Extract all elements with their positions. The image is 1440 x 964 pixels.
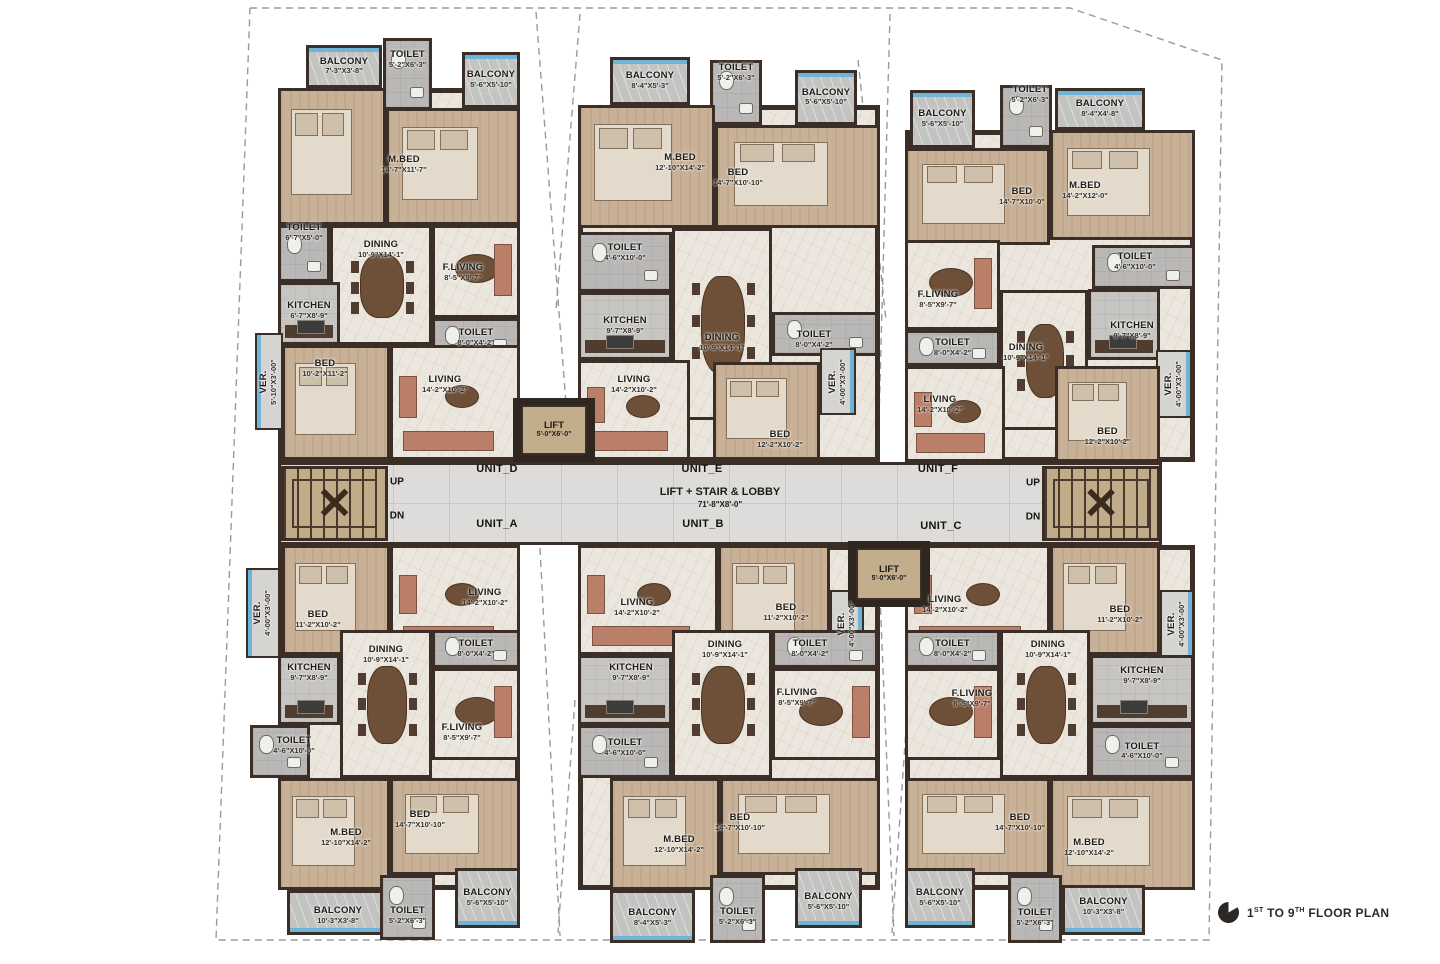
furniture-living [587, 575, 605, 614]
room-dims: 5'-2"X6'-3" [717, 74, 754, 83]
room-label-unit_f-toilet: TOILET4'-6"X10'-0" [1114, 252, 1156, 272]
furniture-dining [360, 254, 405, 318]
furniture-dining [409, 698, 417, 710]
stair-cross: ✕ [316, 478, 353, 529]
lift-dims: 5'-0"X6'-0" [537, 432, 572, 440]
furniture-bed [443, 796, 470, 813]
room-label-unit_b-ver: VER.4'-00"X3'-00" [837, 601, 857, 647]
room-label-unit_b-dining: DINING10'-9"X14'-1" [702, 640, 748, 660]
room-dims: 8'-5"X9'-7" [443, 274, 484, 283]
furniture-kitchen [297, 320, 325, 334]
furniture-bed [1072, 384, 1094, 400]
furniture-dining [351, 302, 359, 314]
room-dims: 5'-6"X5'-10" [467, 81, 515, 90]
room-dims: 5'-6"X5'-10" [802, 99, 850, 108]
room-label-unit_c-kitchen: KITCHEN9'-7"X8'-9" [1120, 666, 1164, 686]
window-marker [798, 73, 854, 77]
furniture-dining [1068, 724, 1076, 736]
room-dims: 9'-7"X8'-9" [609, 674, 653, 683]
room-label-unit_f-living: LIVING14'-2"X10'-2" [917, 395, 963, 415]
room-label-unit_a-balcony: BALCONY5'-6"X5'-10" [463, 888, 511, 908]
room-label-unit_d-mbed: M.BED14'-7"X11'-7" [381, 155, 426, 175]
room-dims: 5'-6"X5'-10" [918, 120, 966, 129]
staircase-right: ✕ [1042, 466, 1160, 541]
furniture-dining [692, 283, 700, 295]
room-dims: 6'-7"X5'-0" [285, 234, 322, 243]
window-marker [913, 93, 972, 97]
room-dims: 10'-2"X11'-2" [302, 370, 347, 379]
room-dims: 4'-00"X3'-00" [1178, 601, 1187, 647]
room-dims: 14'-2"X10'-2" [917, 406, 963, 415]
room-dims: 8'-0"X4'-2" [791, 650, 828, 659]
furniture-dining [747, 283, 755, 295]
room-dims: 8'-0"X4'-2" [934, 650, 971, 659]
room-label-unit_c-ver: VER.4'-00"X3'-00" [1167, 601, 1187, 647]
room-label-unit_b-toilet: TOILET5'-2"X6'-3" [719, 907, 756, 927]
furniture-toilet [644, 757, 658, 768]
room-unit_f-fliving [905, 240, 1000, 330]
room-dims: 10'-9"X14'-1" [699, 344, 745, 353]
room-dims: 4'-6"X10'-0" [604, 749, 646, 758]
furniture-bed [745, 796, 778, 813]
plan-title: 1ST TO 9TH FLOOR PLAN [1247, 906, 1389, 920]
lift-name: LIFT [872, 564, 907, 575]
furniture-dining [406, 261, 414, 273]
room-dims: 10'-3"X3'-8" [1079, 908, 1127, 917]
stair-up-label: UP [1026, 478, 1040, 489]
furniture-dining [1017, 673, 1025, 685]
room-dims: 8'-5"X9'-7" [777, 699, 818, 708]
room-label-unit_c-toilet: TOILET4'-6"X10'-0" [1121, 742, 1163, 762]
room-label-unit_a-toilet: TOILET8'-0"X4'-2" [457, 639, 494, 659]
room-dims: 14'-2"X10'-2" [922, 606, 968, 615]
furniture-dining [358, 698, 366, 710]
lift-label: LIFT5'-0"X6'-0" [872, 564, 907, 584]
window-marker [798, 921, 859, 925]
room-label-unit_d-ver: VER.5'-10"X3'-00" [259, 359, 279, 405]
room-dims: 12'-10"X14'-2" [654, 846, 704, 855]
furniture-toilet [259, 735, 274, 754]
room-label-unit_b-fliving: F.LIVING8'-5"X9'-7" [777, 688, 818, 708]
furniture-living [626, 395, 660, 418]
room-dims: 5'-2"X6'-3" [1011, 96, 1048, 105]
room-dims: 4'-6"X10'-0" [604, 254, 646, 263]
room-unit_d-living [390, 345, 520, 460]
furniture-kitchen [297, 700, 325, 714]
room-label-unit_e-toilet: TOILET5'-2"X6'-3" [717, 63, 754, 83]
furniture-living [399, 376, 417, 417]
room-dims: 14'-7"X10'-0" [999, 198, 1045, 207]
room-label-unit_a-bed: BED14'-7"X10'-10" [395, 810, 445, 830]
lift-dims: 5'-0"X6'-0" [872, 576, 907, 584]
room-label-unit_f-toilet: TOILET8'-0"X4'-2" [934, 338, 971, 358]
furniture-toilet [287, 757, 301, 768]
room-label-unit_c-bed: BED11'-2"X10'-2" [1097, 605, 1142, 625]
furniture-dining [1066, 331, 1074, 343]
room-dims: 11'-2"X10'-2" [763, 614, 808, 623]
furniture-kitchen [1120, 700, 1148, 714]
room-dims: 8'-5"X9'-7" [918, 301, 959, 310]
room-label-unit_e-kitchen: KITCHEN9'-7"X8'-9" [603, 316, 647, 336]
furniture-living [589, 431, 667, 451]
room-label-unit_e-bed: BED14'-7"X10'-10" [713, 168, 763, 188]
room-dims: 10'-9"X14'-1" [358, 251, 404, 260]
furniture-bed [964, 796, 994, 813]
room-label-unit_a-toilet: TOILET5'-2"X6'-3" [389, 906, 426, 926]
furniture-toilet [1017, 887, 1032, 906]
room-dims: 5'-2"X6'-3" [719, 918, 756, 927]
room-dims: 14'-2"X10'-2" [422, 386, 468, 395]
furniture-bed [927, 796, 957, 813]
furniture-dining [409, 724, 417, 736]
furniture-bed [296, 799, 319, 818]
furniture-bed [927, 166, 957, 183]
furniture-toilet [849, 650, 863, 661]
room-dims: 7'-3"X3'-8" [320, 68, 368, 77]
furniture-bed [1109, 799, 1139, 818]
window-marker [1188, 592, 1192, 655]
furniture-toilet [972, 348, 986, 359]
room-label-unit_e-balcony: BALCONY8'-4"X5'-3" [626, 71, 674, 91]
room-label-unit_f-bed: BED12'-2"X10'-2" [1085, 427, 1131, 447]
stair-cross: ✕ [1083, 478, 1120, 529]
furniture-bed [730, 381, 752, 398]
furniture-dining [747, 724, 755, 736]
furniture-dining [701, 276, 745, 374]
room-label-unit_e-toilet: TOILET4'-6"X10'-0" [604, 243, 646, 263]
furniture-toilet [1166, 270, 1180, 281]
furniture-dining [1017, 379, 1025, 391]
room-label-unit_e-mbed: M.BED12'-10"X14'-2" [655, 153, 705, 173]
room-label-unit_e-toilet: TOILET8'-0"X4'-2" [795, 330, 832, 350]
furniture-bed [326, 566, 348, 585]
window-marker [309, 48, 379, 52]
room-dims: 14'-2"X10'-2" [611, 386, 657, 395]
furniture-dining [1026, 666, 1066, 745]
room-label-unit_f-balcony: BALCONY8'-4"X4'-8" [1076, 99, 1124, 119]
furniture-dining [692, 698, 700, 710]
room-label-unit_e-bed: BED12'-2"X10'-2" [757, 430, 803, 450]
room-dims: 14'-2"X10'-2" [614, 609, 660, 618]
furniture-toilet [919, 637, 934, 656]
room-label-unit_f-dining: DINING10'-9"X14'-1" [1003, 343, 1049, 363]
unit-label-unit_a: UNIT_A [476, 518, 518, 530]
lobby-title: LIFT + STAIR & LOBBY [660, 486, 781, 500]
room-label-unit_e-balcony: BALCONY5'-6"X5'-10" [802, 88, 850, 108]
room-label-unit_c-bed: BED14'-7"X10'-10" [995, 813, 1045, 833]
furniture-living [403, 431, 494, 451]
room-label-unit_d-toilet: TOILET8'-0"X4'-2" [457, 328, 494, 348]
room-unit_f-bed [1055, 366, 1160, 462]
furniture-fliving [974, 258, 992, 309]
room-label-unit_b-bed: BED14'-7"X10'-10" [715, 813, 765, 833]
room-unit_c-mbed [1050, 778, 1195, 890]
furniture-bed [1072, 151, 1102, 170]
furniture-dining [747, 673, 755, 685]
furniture-bed [440, 130, 468, 150]
room-label-unit_b-balcony: BALCONY8'-4"X5'-3" [628, 908, 676, 928]
room-label-unit_d-toilet: TOILET6'-7"X5'-0" [285, 223, 322, 243]
room-label-unit_a-bed: BED11'-2"X10'-2" [295, 610, 340, 630]
window-marker [908, 921, 972, 925]
furniture-bed [323, 799, 346, 818]
furniture-bed [964, 166, 994, 183]
furniture-dining [1017, 331, 1025, 343]
room-label-unit_a-toilet: TOILET4'-6"X10'-0" [273, 736, 315, 756]
room-label-unit_a-fliving: F.LIVING8'-5"X9'-7" [442, 723, 483, 743]
room-label-unit_f-fliving: F.LIVING8'-5"X9'-7" [918, 290, 959, 310]
furniture-bed [763, 566, 786, 585]
room-dims: 8'-4"X5'-3" [626, 82, 674, 91]
room-dims: 12'-10"X14'-2" [321, 839, 371, 848]
room-label-unit_f-bed: BED14'-7"X10'-0" [999, 187, 1045, 207]
room-dims: 5'-2"X6'-3" [1016, 919, 1053, 928]
room-dims: 8'-4"X5'-3" [628, 919, 676, 928]
lobby-dims: 71'-8"X8'-0" [660, 500, 781, 510]
furniture-bed [1098, 384, 1120, 400]
plan-footer: 1ST TO 9TH FLOOR PLAN [1218, 902, 1389, 923]
room-label-unit_d-toilet: TOILET5'-2"X6'-3" [389, 50, 426, 70]
furniture-toilet [410, 87, 424, 98]
staircase-left: ✕ [281, 466, 388, 541]
room-dims: 4'-00"X3'-00" [264, 590, 273, 636]
furniture-dining [406, 282, 414, 294]
furniture-bed [322, 113, 344, 136]
room-label-unit_e-living: LIVING14'-2"X10'-2" [611, 375, 657, 395]
furniture-living [399, 575, 417, 614]
room-unit_b-fliving [772, 668, 878, 760]
unit-label-unit_f: UNIT_F [918, 463, 958, 475]
room-label-unit_f-balcony: BALCONY5'-6"X5'-10" [918, 109, 966, 129]
room-label-unit_c-balcony: BALCONY5'-6"X5'-10" [916, 888, 964, 908]
room-dims: 12'-10"X14'-2" [1064, 849, 1114, 858]
lobby-label: LIFT + STAIR & LOBBY 71'-8"X8'-0" [660, 486, 781, 510]
room-dims: 5'-2"X6'-3" [389, 61, 426, 70]
furniture-dining [692, 673, 700, 685]
furniture-dining [351, 261, 359, 273]
furniture-dining [701, 666, 745, 745]
unit-label-unit_d: UNIT_D [476, 463, 518, 475]
room-label-unit_b-living: LIVING14'-2"X10'-2" [614, 598, 660, 618]
furniture-dining [351, 282, 359, 294]
window-marker [1065, 928, 1142, 932]
furniture-dining [747, 347, 755, 359]
window-marker [850, 350, 854, 413]
furniture-dining [1068, 673, 1076, 685]
room-dims: 11'-2"X10'-2" [295, 621, 340, 630]
room-label-unit_c-mbed: M.BED12'-10"X14'-2" [1064, 838, 1114, 858]
room-dims: 4'-00"X3'-00" [848, 601, 857, 647]
furniture-bed [299, 566, 321, 585]
furniture-bed [756, 381, 778, 398]
room-unit_a-fliving [432, 668, 520, 760]
furniture-bed [628, 799, 651, 818]
window-marker [1186, 352, 1190, 416]
room-dims: 4'-6"X10'-0" [1114, 263, 1156, 272]
furniture-toilet [389, 886, 404, 905]
furniture-bed [1109, 151, 1139, 170]
room-dims: 14'-7"X10'-10" [715, 824, 765, 833]
room-dims: 14'-2"X12'-0" [1062, 192, 1108, 201]
lift-label: LIFT5'-0"X6'-0" [537, 420, 572, 440]
north-marker-icon [1218, 902, 1239, 923]
furniture-kitchen [606, 700, 634, 714]
room-label-unit_d-balcony: BALCONY5'-6"X5'-10" [467, 70, 515, 90]
furniture-toilet [1105, 735, 1120, 754]
room-label-unit_a-ver: VER.4'-00"X3'-00" [253, 590, 273, 636]
stair-down-label: DN [390, 511, 404, 522]
furniture-bed [633, 128, 661, 149]
room-label-unit_c-dining: DINING10'-9"X14'-1" [1025, 640, 1071, 660]
room-unit_c-fliving [905, 668, 1000, 760]
furniture-bed [785, 796, 818, 813]
room-unit_d-bedroom [278, 88, 386, 225]
furniture-toilet [739, 103, 753, 114]
unit-label-unit_c: UNIT_C [920, 520, 962, 532]
room-dims: 4'-00"X3'-00" [839, 359, 848, 405]
room-dims: 14'-2"X10'-2" [462, 599, 508, 608]
room-label-unit_d-kitchen: KITCHEN6'-7"X8'-9" [287, 301, 331, 321]
lift-lower: LIFT5'-0"X6'-0" [848, 541, 930, 607]
room-label-unit_a-kitchen: KITCHEN9'-7"X8'-9" [287, 663, 331, 683]
room-dims: 5'-6"X5'-10" [804, 903, 852, 912]
room-label-unit_c-toilet: TOILET8'-0"X4'-2" [934, 639, 971, 659]
floor-plan-canvas: LIFT + STAIR & LOBBY 71'-8"X8'-0" 1ST TO… [0, 0, 1440, 964]
room-label-unit_c-toilet: TOILET5'-2"X6'-3" [1016, 908, 1053, 928]
room-label-unit_b-kitchen: KITCHEN9'-7"X8'-9" [609, 663, 653, 683]
room-dims: 12'-2"X10'-2" [757, 441, 803, 450]
room-dims: 8'-4"X4'-8" [1076, 110, 1124, 119]
furniture-toilet [493, 650, 507, 661]
room-dims: 8'-0"X4'-2" [457, 650, 494, 659]
room-label-unit_b-toilet: TOILET8'-0"X4'-2" [791, 639, 828, 659]
room-label-unit_a-mbed: M.BED12'-10"X14'-2" [321, 828, 371, 848]
furniture-toilet [719, 887, 734, 906]
window-marker [613, 936, 692, 940]
room-dims: 10'-9"X14'-1" [363, 656, 409, 665]
room-dims: 9'-7"X8'-9" [287, 674, 331, 683]
stair-down-label: DN [1026, 512, 1040, 523]
furniture-toilet [972, 650, 986, 661]
furniture-fliving [494, 244, 512, 296]
window-marker [1058, 91, 1142, 95]
furniture-bed [407, 130, 435, 150]
furniture-living [916, 433, 986, 453]
room-dims: 4'-00"X3'-00" [1175, 361, 1184, 407]
room-label-unit_b-balcony: BALCONY5'-6"X5'-10" [804, 892, 852, 912]
room-label-unit_a-living: LIVING14'-2"X10'-2" [462, 588, 508, 608]
room-label-unit_a-balcony: BALCONY10'-3"X3'-8" [314, 906, 362, 926]
furniture-toilet [1029, 126, 1043, 137]
room-dims: 12'-2"X10'-2" [1085, 438, 1131, 447]
room-dims: 8'-0"X4'-2" [795, 341, 832, 350]
room-dims: 9'-7"X8'-9" [1120, 677, 1164, 686]
room-label-unit_b-mbed: M.BED12'-10"X14'-2" [654, 835, 704, 855]
room-dims: 14'-7"X10'-10" [995, 824, 1045, 833]
furniture-bed [1072, 799, 1102, 818]
furniture-fliving [852, 686, 870, 738]
furniture-toilet [849, 337, 863, 348]
room-label-unit_e-ver: VER.4'-00"X3'-00" [828, 359, 848, 405]
room-label-unit_d-bed: BED10'-2"X11'-2" [302, 359, 347, 379]
room-label-unit_c-balcony: BALCONY10'-3"X3'-8" [1079, 897, 1127, 917]
furniture-kitchen [606, 335, 634, 349]
room-dims: 5'-10"X3'-00" [270, 359, 279, 405]
room-label-unit_c-living: LIVING14'-2"X10'-2" [922, 595, 968, 615]
furniture-bed [655, 799, 678, 818]
furniture-toilet [919, 337, 934, 356]
furniture-dining [747, 698, 755, 710]
room-dims: 14'-7"X11'-7" [381, 166, 426, 175]
furniture-dining [747, 315, 755, 327]
room-dims: 4'-6"X10'-0" [273, 747, 315, 756]
room-dims: 8'-5"X9'-7" [952, 700, 993, 709]
stair-up-label: UP [390, 477, 404, 488]
furniture-toilet [644, 270, 658, 281]
furniture-bed [740, 144, 774, 162]
furniture-dining [692, 724, 700, 736]
furniture-dining [1017, 698, 1025, 710]
room-label-unit_f-toilet: TOILET5'-2"X6'-3" [1011, 85, 1048, 105]
furniture-dining [367, 666, 408, 745]
lift-upper: LIFT5'-0"X6'-0" [513, 398, 595, 462]
room-label-unit_b-toilet: TOILET4'-6"X10'-0" [604, 738, 646, 758]
room-label-unit_a-dining: DINING10'-9"X14'-1" [363, 645, 409, 665]
room-dims: 10'-3"X3'-8" [314, 917, 362, 926]
room-dims: 4'-6"X10'-0" [1121, 753, 1163, 762]
room-label-unit_d-living: LIVING14'-2"X10'-2" [422, 375, 468, 395]
room-label-unit_e-dining: DINING10'-9"X14'-1" [699, 333, 745, 353]
room-label-unit_f-kitchen: KITCHEN9'-7"X8'-9" [1110, 321, 1154, 341]
room-dims: 8'-5"X9'-7" [442, 734, 483, 743]
furniture-bed [736, 566, 759, 585]
unit-label-unit_b: UNIT_B [682, 518, 724, 530]
room-dims: 9'-7"X8'-9" [1110, 332, 1154, 341]
room-label-unit_b-bed: BED11'-2"X10'-2" [763, 603, 808, 623]
furniture-bed [1095, 566, 1118, 585]
furniture-dining [692, 315, 700, 327]
room-dims: 14'-7"X10'-10" [713, 179, 763, 188]
window-marker [613, 60, 687, 64]
window-marker [458, 921, 517, 925]
room-label-unit_f-mbed: M.BED14'-2"X12'-0" [1062, 181, 1108, 201]
lift-name: LIFT [537, 420, 572, 431]
room-dims: 6'-7"X8'-9" [287, 312, 331, 321]
furniture-bed [599, 128, 627, 149]
room-label-unit_d-balcony: BALCONY7'-3"X3'-8" [320, 57, 368, 77]
room-dims: 10'-9"X14'-1" [702, 651, 748, 660]
furniture-living [966, 583, 1000, 606]
room-dims: 14'-7"X10'-10" [395, 821, 445, 830]
furniture-dining [409, 673, 417, 685]
room-dims: 5'-6"X5'-10" [463, 899, 511, 908]
furniture-bed [295, 113, 317, 136]
furniture-toilet [1165, 757, 1179, 768]
room-dims: 10'-9"X14'-1" [1025, 651, 1071, 660]
room-dims: 5'-2"X6'-3" [389, 917, 426, 926]
room-dims: 9'-7"X8'-9" [603, 327, 647, 336]
room-label-unit_c-fliving: F.LIVING8'-5"X9'-7" [952, 689, 993, 709]
furniture-bed [782, 144, 816, 162]
furniture-toilet [307, 261, 321, 272]
room-dims: 8'-0"X4'-2" [457, 339, 494, 348]
room-dims: 5'-6"X5'-10" [916, 899, 964, 908]
unit-label-unit_e: UNIT_E [682, 463, 723, 475]
room-dims: 10'-9"X14'-1" [1003, 354, 1049, 363]
window-marker [465, 55, 517, 59]
room-dims: 12'-10"X14'-2" [655, 164, 705, 173]
room-dims: 8'-0"X4'-2" [934, 349, 971, 358]
